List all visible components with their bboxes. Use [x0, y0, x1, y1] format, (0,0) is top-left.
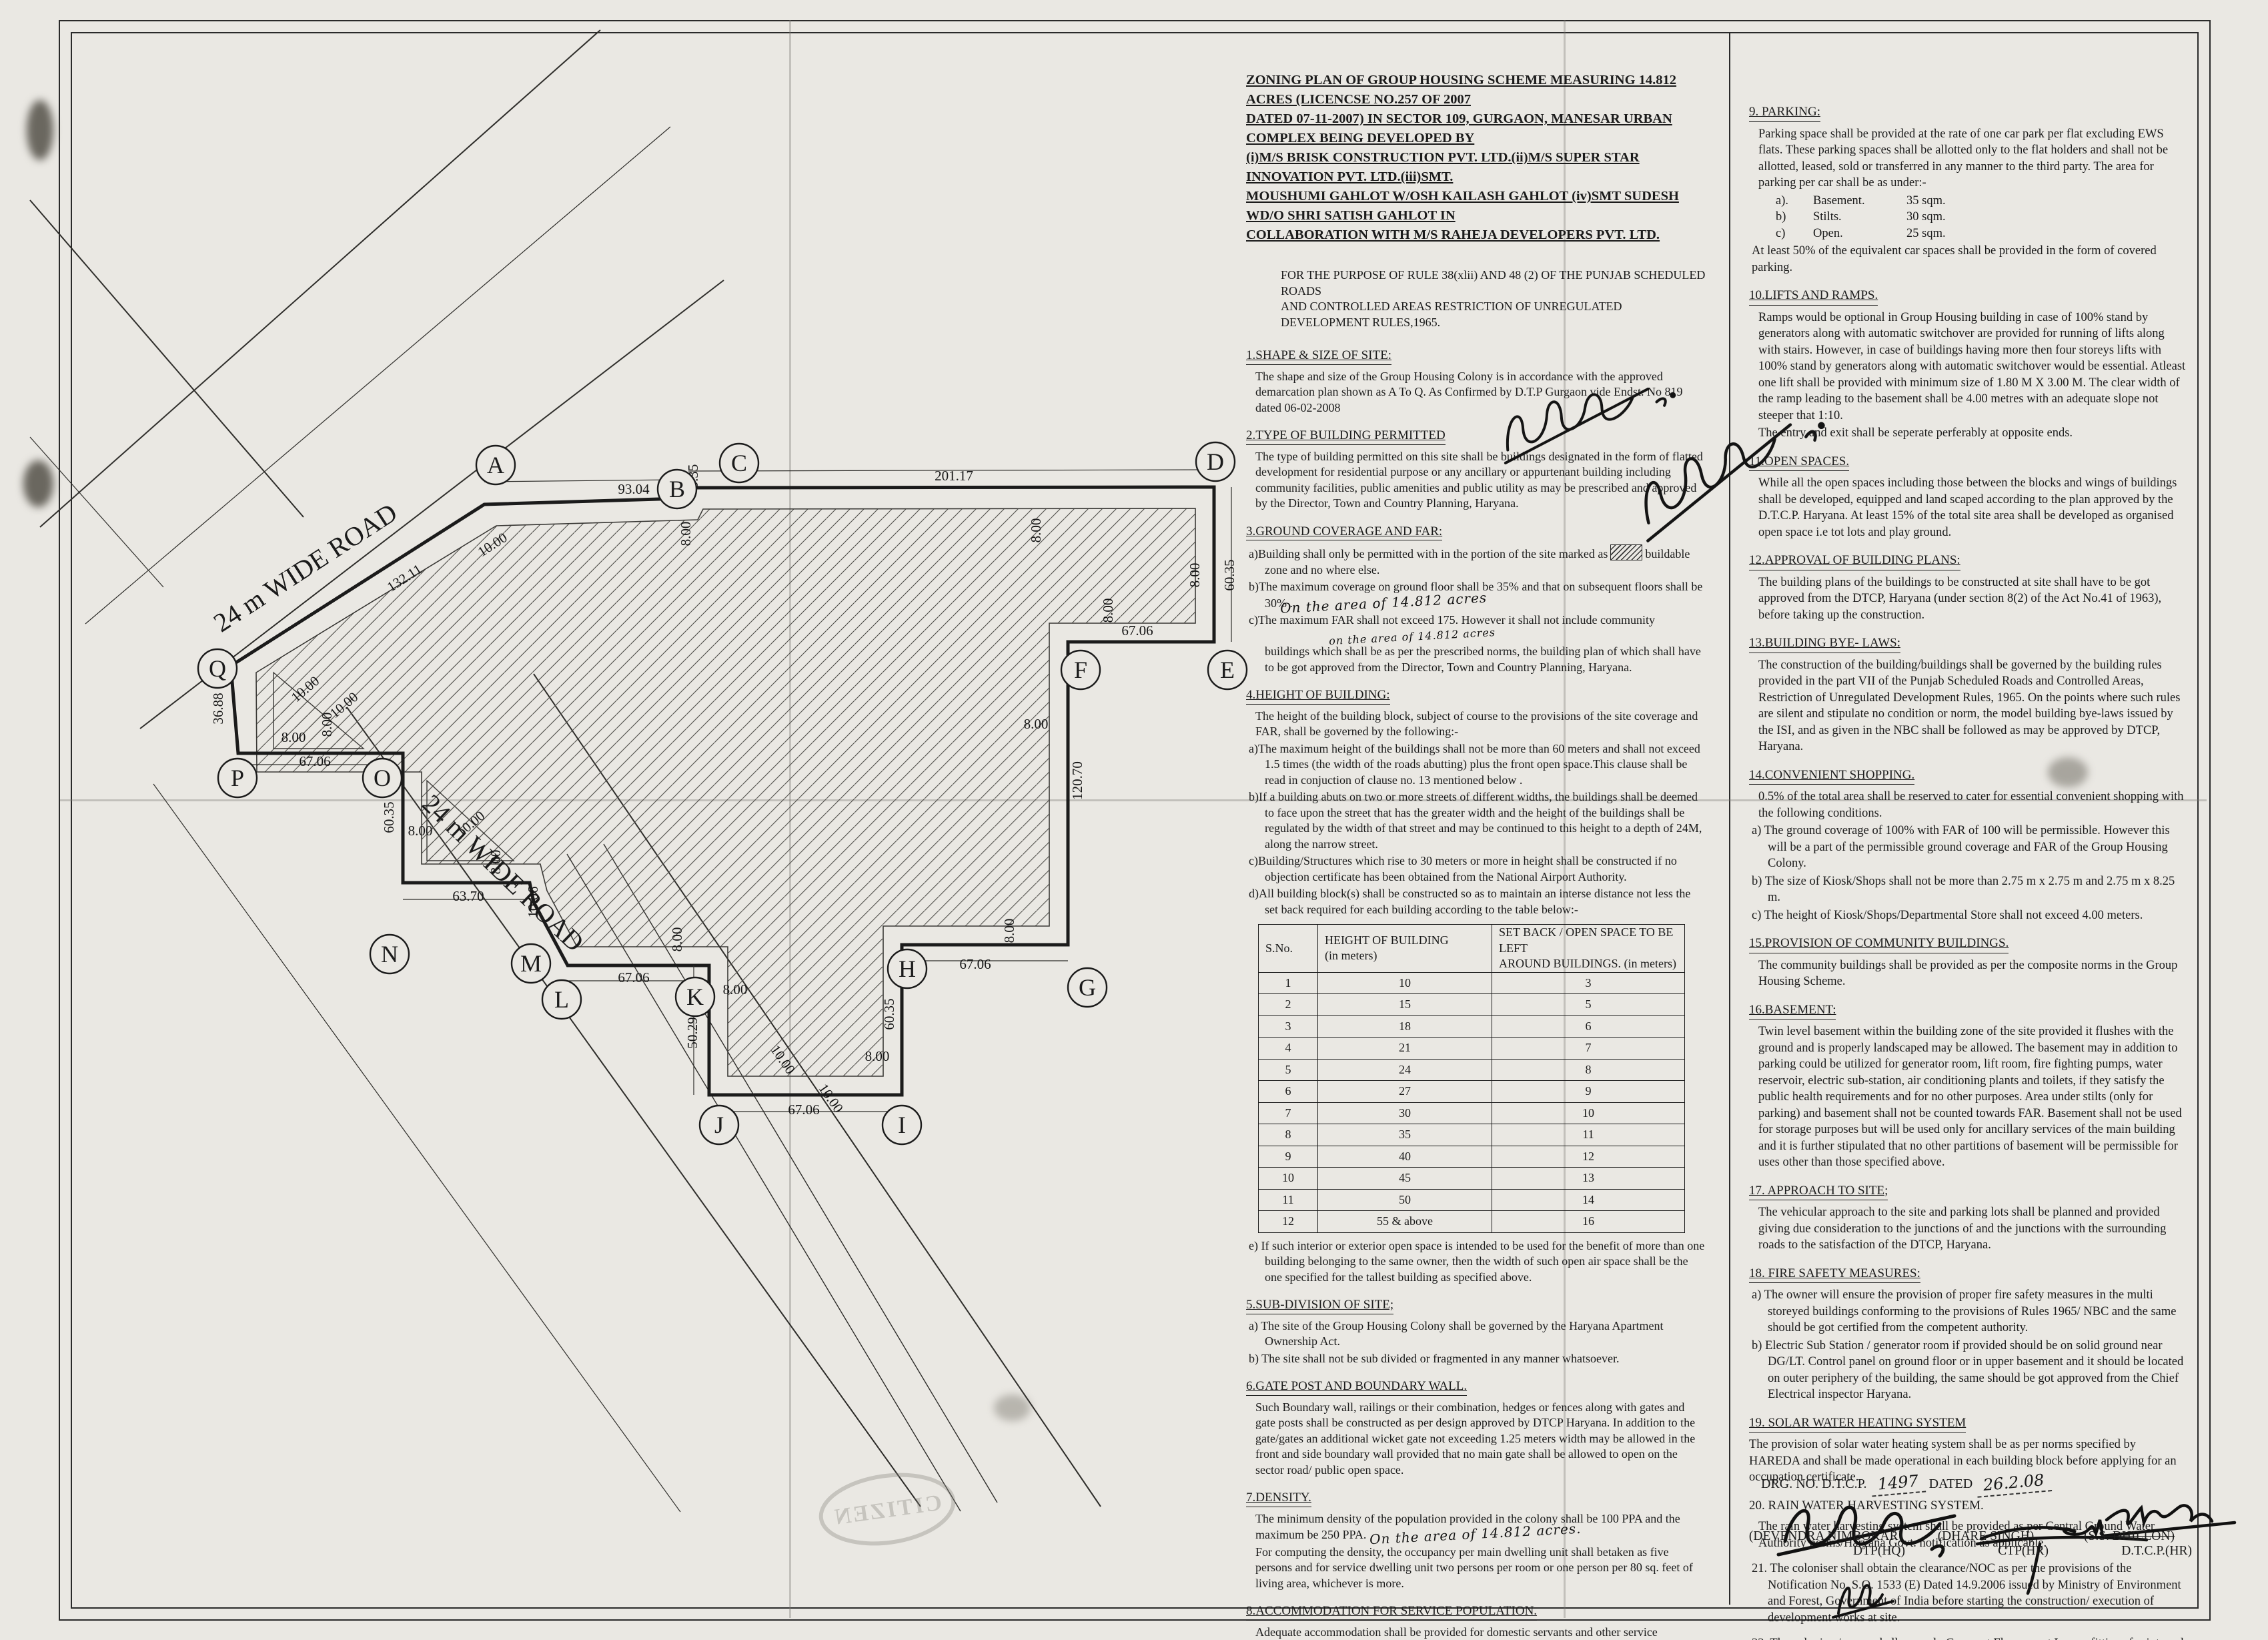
section-body: Twin level basement within the building … [1758, 1023, 2189, 1171]
section-body: Such Boundary wall, railings or their co… [1255, 1400, 1706, 1479]
svg-text:8.00: 8.00 [1187, 563, 1203, 588]
section-body: The height of the building block, subjec… [1255, 709, 1706, 740]
table-row: 104513 [1259, 1168, 1685, 1190]
section-heading: 18. FIRE SAFETY MEASURES: [1749, 1266, 1920, 1284]
section-heading: 9. PARKING: [1749, 104, 1820, 122]
svg-text:93.04: 93.04 [618, 481, 650, 497]
clause-4c: c)Building/Structures which rise to 30 m… [1249, 853, 1706, 885]
svg-text:60.35: 60.35 [1221, 559, 1237, 590]
clause-3b: b)The maximum coverage on ground floor s… [1249, 579, 1706, 611]
section-body: The community buildings shall be provide… [1758, 957, 2189, 990]
svg-text:C: C [731, 450, 747, 476]
svg-text:67.06: 67.06 [788, 1102, 819, 1118]
svg-text:60.35: 60.35 [381, 801, 397, 833]
table-row: 1103 [1259, 972, 1685, 994]
section-heading: 7.DENSITY. [1246, 1490, 1311, 1507]
section-heading: 12.APPROVAL OF BUILDING PLANS: [1749, 552, 1960, 570]
svg-text:63.70: 63.70 [452, 888, 484, 904]
parking-area-list: a).Basement.35 sqm. b)Stilts.30 sqm. c)O… [1776, 193, 2189, 242]
svg-text:10.00: 10.00 [815, 1081, 846, 1116]
table-row: 83511 [1259, 1124, 1685, 1146]
document-title: ZONING PLAN OF GROUP HOUSING SCHEME MEAS… [1246, 71, 1706, 245]
table-row: 94012 [1259, 1146, 1685, 1168]
section-body: The entry and exit shall be seperate per… [1758, 425, 2189, 442]
section-body: 0.5% of the total area shall be reserved… [1758, 789, 2189, 821]
svg-text:L: L [554, 986, 569, 1013]
setback-table: S.No. HEIGHT OF BUILDING(in meters) SET … [1258, 924, 1685, 1233]
svg-text:36.88: 36.88 [210, 693, 226, 724]
table-row: 4217 [1259, 1038, 1685, 1060]
svg-text:67.06: 67.06 [959, 956, 991, 972]
svg-text:CITIZEN: CITIZEN [831, 1491, 943, 1531]
clause-18a: a) The owner will ensure the provision o… [1752, 1287, 2189, 1336]
section-heading: 3.GROUND COVERAGE AND FAR: [1246, 524, 1442, 541]
handwritten-note: On the area of 14.812 acres [1295, 590, 1487, 615]
svg-text:8.00: 8.00 [408, 823, 433, 839]
clause-5a: a) The site of the Group Housing Colony … [1249, 1318, 1706, 1350]
svg-text:Q: Q [209, 655, 226, 682]
clause-5b: b) The site shall not be sub divided or … [1249, 1351, 1706, 1367]
clause-14b: b) The size of Kiosk/Shops shall not be … [1752, 873, 2189, 906]
hatch-legend-swatch [1610, 544, 1642, 560]
svg-text:8.00: 8.00 [669, 927, 685, 952]
svg-text:8.00: 8.00 [865, 1048, 890, 1064]
section-body: The building plans of the buildings to b… [1758, 574, 2189, 624]
svg-text:N: N [381, 941, 398, 967]
clause-3a: a)Building shall only be permitted with … [1249, 544, 1706, 578]
section-body: While all the open spaces including thos… [1758, 475, 2189, 540]
section-heading: 4.HEIGHT OF BUILDING: [1246, 687, 1390, 705]
svg-text:8.00: 8.00 [1024, 716, 1049, 732]
clause-4a: a)The maximum height of the buildings sh… [1249, 741, 1706, 789]
svg-text:8.00: 8.00 [678, 522, 694, 546]
section-body: The construction of the building/buildin… [1758, 657, 2189, 755]
clause-4e: e) If such interior or exterior open spa… [1249, 1238, 1706, 1286]
clause-18b: b) Electric Sub Station / generator room… [1752, 1338, 2189, 1403]
section-heading: 11.OPEN SPACES. [1749, 454, 1849, 472]
svg-text:M: M [520, 950, 542, 977]
svg-text:8.00: 8.00 [1100, 598, 1116, 623]
svg-text:8.00: 8.00 [1001, 919, 1017, 943]
section-heading: 13.BUILDING BYE- LAWS: [1749, 635, 1900, 653]
svg-text:67.06: 67.06 [618, 969, 649, 985]
table-row: 2155 [1259, 994, 1685, 1016]
svg-text:A: A [487, 452, 504, 478]
svg-text:H: H [899, 955, 916, 982]
svg-text:O: O [374, 765, 391, 791]
table-row: 1255 & above16 [1259, 1211, 1685, 1233]
section-heading: 15.PROVISION OF COMMUNITY BUILDINGS. [1749, 935, 2009, 953]
clause-14c: c) The height of Kiosk/Shops/Departmenta… [1752, 907, 2189, 924]
signatory-block: (S.S. DHILLON) D.T.C.P.(HR) [2063, 1529, 2196, 1559]
signatory-name: (S.S. DHILLON) [2063, 1529, 2196, 1544]
section-body: Parking space shall be provided at the r… [1758, 126, 2189, 191]
svg-text:8.00: 8.00 [488, 850, 504, 875]
clause-22: 22. The coloniser/owner shall use only C… [1752, 1635, 2189, 1640]
svg-text:8.00: 8.00 [281, 729, 306, 745]
purpose-statement: FOR THE PURPOSE OF RULE 38(xlii) AND 48 … [1281, 268, 1706, 330]
svg-text:G: G [1079, 974, 1096, 1001]
table-row: 5248 [1259, 1059, 1685, 1081]
section-heading: 19. SOLAR WATER HEATING SYSTEM [1749, 1415, 1966, 1433]
section-body: The minimum density of the population pr… [1255, 1511, 1706, 1543]
section-body: At least 50% of the equivalent car space… [1752, 243, 2189, 276]
clause-4b: b)If a building abuts on two or more str… [1249, 789, 1706, 852]
section-heading: 1.SHAPE & SIZE OF SITE: [1246, 348, 1391, 365]
regulations-column-1: ZONING PLAN OF GROUP HOUSING SCHEME MEAS… [1246, 71, 1706, 1640]
svg-text:201.17: 201.17 [935, 468, 973, 484]
section-heading: 2.TYPE OF BUILDING PERMITTED [1246, 428, 1446, 445]
clause-3c: c)The maximum FAR shall not exceed 175. … [1249, 612, 1706, 675]
section-heading: 14.CONVENIENT SHOPPING. [1749, 767, 1914, 785]
svg-text:67.06: 67.06 [299, 753, 330, 769]
section-heading: 6.GATE POST AND BOUNDARY WALL. [1246, 1378, 1467, 1396]
section-heading: 17. APPROACH TO SITE; [1749, 1183, 1888, 1201]
svg-text:B: B [669, 476, 685, 502]
section-body: Ramps would be optional in Group Housing… [1758, 310, 2189, 424]
table-row: 6279 [1259, 1081, 1685, 1103]
svg-text:67.06: 67.06 [1121, 623, 1153, 639]
section-heading: 8.ACCOMMODATION FOR SERVICE POPULATION. [1246, 1603, 1537, 1621]
citizen-stamp: CITIZEN [816, 1467, 958, 1552]
section-body: For computing the density, the occupancy… [1255, 1545, 1706, 1592]
svg-text:8.00: 8.00 [723, 981, 748, 997]
signatory-block: (DEVENDRA NIMBOKAR) DTP(HQ) [1742, 1529, 1909, 1559]
svg-text:K: K [686, 983, 704, 1010]
svg-text:10.06: 10.06 [525, 886, 541, 917]
section-heading: 16.BASEMENT: [1749, 1002, 1836, 1020]
signatory-name: (DHARE SINGH) [1919, 1529, 2053, 1544]
clause-14a: a) The ground coverage of 100% with FAR … [1752, 823, 2189, 872]
signatory-title: DTP(HQ) [1742, 1544, 1909, 1559]
zoning-plan-sheet: 24 m WIDE ROAD 24 m WIDE ROAD 93.04 3.35… [0, 0, 2268, 1640]
regulations-column-2: 9. PARKING: Parking space shall be provi… [1749, 93, 2189, 1640]
svg-text:E: E [1220, 657, 1235, 683]
svg-text:60.35: 60.35 [881, 998, 897, 1030]
section-body: Adequate accommodation shall be provided… [1255, 1625, 1706, 1640]
svg-text:8.00: 8.00 [1028, 518, 1044, 543]
svg-text:J: J [714, 1112, 724, 1138]
svg-text:P: P [231, 765, 244, 791]
section-body: The vehicular approach to the site and p… [1758, 1204, 2189, 1254]
drawing-number-line: DRG. NO. D.T.C.P.1497DATED26.2.08 [1761, 1473, 2055, 1495]
signatory-block: (DHARE SINGH) CTP(HR) [1919, 1529, 2053, 1559]
signatory-title: D.T.C.P.(HR) [2063, 1544, 2196, 1559]
table-row: 3186 [1259, 1015, 1685, 1038]
signature-initial-scribble [1829, 1575, 1902, 1625]
svg-text:50.29: 50.29 [684, 1017, 700, 1048]
signatories: (DEVENDRA NIMBOKAR) DTP(HQ) (DHARE SINGH… [1742, 1529, 2196, 1559]
table-row: 73010 [1259, 1102, 1685, 1124]
section-heading: 10.LIFTS AND RAMPS. [1749, 288, 1878, 306]
signatory-title: CTP(HR) [1919, 1544, 2053, 1559]
clause-4d: d)All building block(s) shall be constru… [1249, 886, 1706, 917]
svg-text:120.70: 120.70 [1069, 761, 1085, 800]
table-row: 115014 [1259, 1189, 1685, 1211]
signatory-name: (DEVENDRA NIMBOKAR) [1742, 1529, 1909, 1544]
svg-text:D: D [1207, 448, 1224, 475]
svg-text:I: I [898, 1112, 906, 1138]
svg-text:F: F [1074, 657, 1087, 683]
section-heading: 5.SUB-DIVISION OF SITE; [1246, 1297, 1393, 1314]
